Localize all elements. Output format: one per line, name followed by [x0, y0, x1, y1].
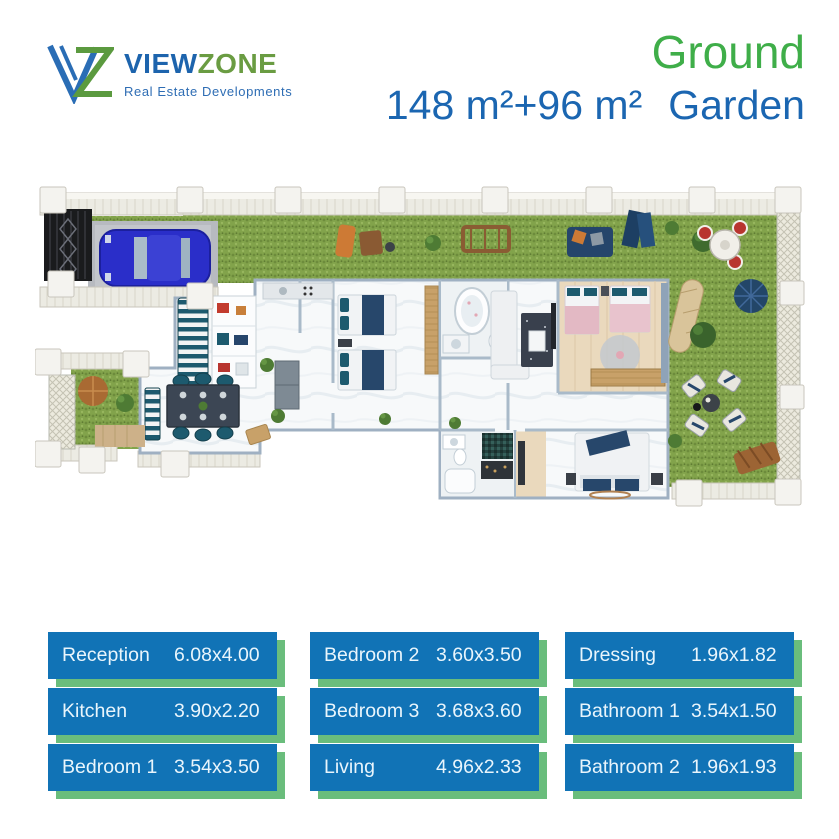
room-size: 3.90x2.20	[174, 700, 260, 723]
room-name: Bathroom 2	[579, 756, 680, 779]
umbrella-icon	[78, 376, 108, 406]
bed-icon	[338, 350, 396, 390]
room-card-bedroom3: Bedroom 3 3.68x3.60	[310, 688, 539, 735]
room-name: Dressing	[579, 644, 656, 667]
area-line: 148 m²+96 m²Garden	[386, 84, 805, 127]
room-card-living: Living 4.96x2.33	[310, 744, 539, 791]
vz-monogram-icon	[46, 40, 114, 104]
room-size: 4.96x2.33	[436, 756, 522, 779]
brand-name-view: VIEW	[124, 48, 198, 79]
umbrella-icon	[734, 279, 768, 313]
room-name: Bathroom 1	[579, 700, 680, 723]
floor-label: Ground	[386, 28, 805, 76]
bed-icon	[338, 295, 396, 335]
lounge-chair-icon	[567, 227, 613, 257]
sofa-icon	[575, 430, 649, 491]
room-card-bedroom2: Bedroom 2 3.60x3.50	[310, 632, 539, 679]
room-card-bathroom1: Bathroom 1 3.54x1.50	[565, 688, 794, 735]
wardrobe-icon	[591, 369, 665, 386]
room-name: Living	[324, 756, 375, 779]
room-size: 3.60x3.50	[436, 644, 522, 667]
car-icon	[100, 230, 210, 286]
brand-tagline: Real Estate Developments	[124, 84, 292, 99]
room-size: 3.68x3.60	[436, 700, 522, 723]
bathtub-icon	[455, 288, 489, 334]
brand-name: VIEWZONE	[124, 50, 292, 78]
room-card-bathroom2: Bathroom 2 1.96x1.93	[565, 744, 794, 791]
room-size: 3.54x3.50	[174, 756, 260, 779]
room-size: 1.96x1.93	[691, 756, 777, 779]
bedroom2-furniture	[560, 281, 669, 392]
entrance-gate-icon	[44, 209, 92, 281]
living-furniture	[516, 430, 663, 498]
room-size: 1.96x1.82	[691, 644, 777, 667]
room-size: 6.08x4.00	[174, 644, 260, 667]
room-card-reception: Reception 6.08x4.00	[48, 632, 277, 679]
brand-logo: VIEWZONE Real Estate Developments	[46, 40, 292, 104]
room-name: Bedroom 1	[62, 756, 157, 779]
room-name: Bedroom 3	[324, 700, 419, 723]
bed-icon	[565, 286, 599, 334]
brand-name-zone: ZONE	[198, 48, 278, 79]
room-size: 3.54x1.50	[691, 700, 777, 723]
room-card-bedroom1: Bedroom 1 3.54x3.50	[48, 744, 277, 791]
bed-icon	[610, 286, 650, 332]
floor-plan-image	[35, 183, 805, 508]
room-name: Reception	[62, 644, 150, 667]
room-card-dressing: Dressing 1.96x1.82	[565, 632, 794, 679]
plan-title: Ground 148 m²+96 m²Garden	[386, 28, 805, 127]
area-label: 148 m²+96 m²	[386, 82, 642, 128]
garden-label: Garden	[668, 82, 805, 128]
shower-icon	[482, 433, 513, 459]
room-name: Bedroom 2	[324, 644, 419, 667]
room-name: Kitchen	[62, 700, 127, 723]
bathroom2-fixtures	[441, 432, 514, 497]
room-card-kitchen: Kitchen 3.90x2.20	[48, 688, 277, 735]
